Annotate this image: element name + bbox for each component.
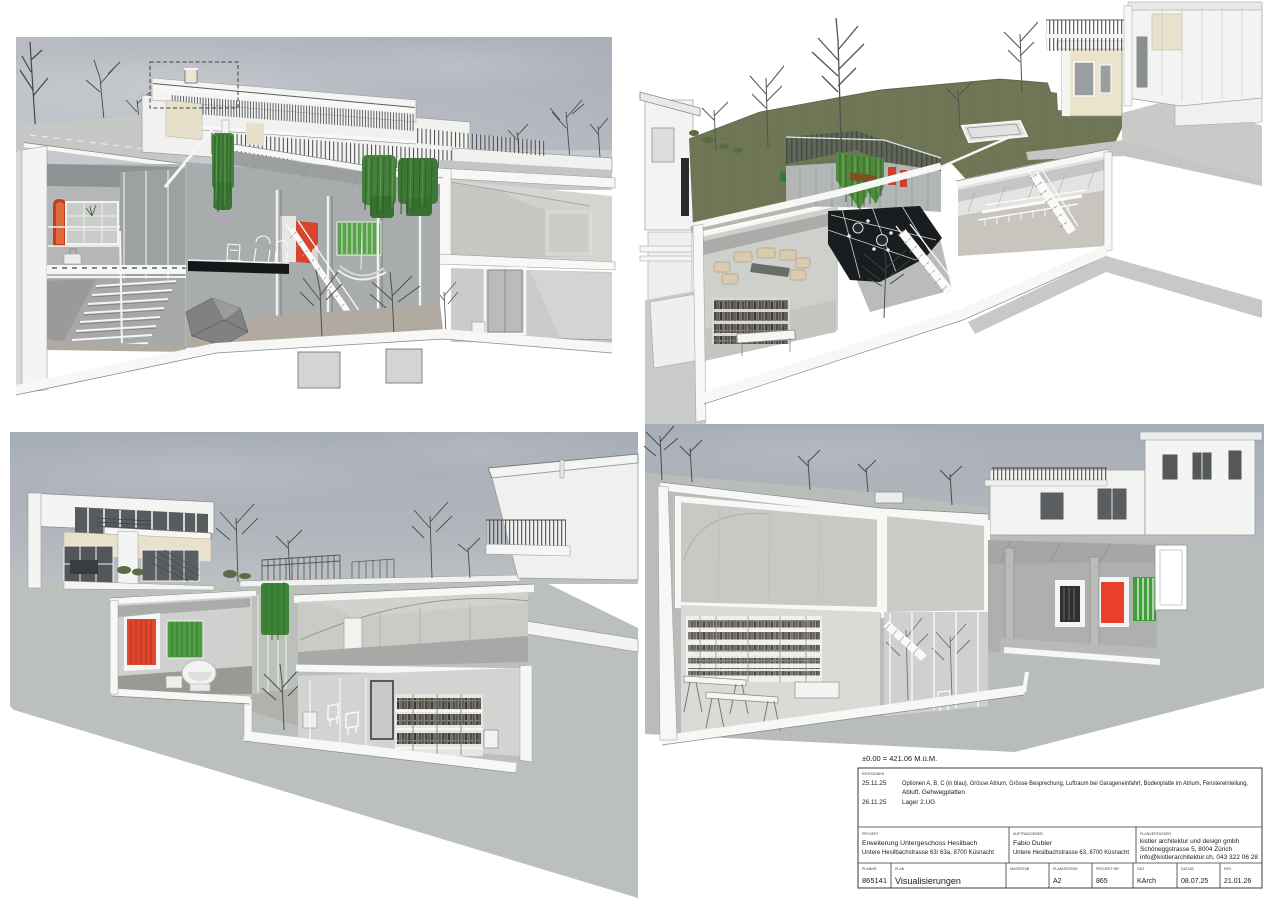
svg-text:Optionen A, B, C (in blau), Gr: Optionen A, B, C (in blau), Grösse Atriu… <box>902 780 1248 787</box>
svg-text:MASSSTAB: MASSSTAB <box>1010 867 1030 871</box>
svg-text:PLANGRÖSSE: PLANGRÖSSE <box>1053 867 1078 871</box>
svg-text:REVISIONEN: REVISIONEN <box>862 772 885 776</box>
svg-text:PROJEKT NR: PROJEKT NR <box>1096 867 1119 871</box>
svg-text:865141: 865141 <box>862 876 887 885</box>
svg-text:PROJEKT: PROJEKT <box>862 832 879 836</box>
svg-text:REV: REV <box>1224 867 1232 871</box>
svg-text:Visualisierungen: Visualisierungen <box>895 876 961 886</box>
svg-text:Schöneggstrasse 5, 8004 Zürich: Schöneggstrasse 5, 8004 Zürich <box>1140 846 1232 853</box>
svg-text:GEZ: GEZ <box>1137 867 1145 871</box>
svg-text:info@kistlerarchitektur.ch, 04: info@kistlerarchitektur.ch, 043 322 06 2… <box>1140 854 1258 861</box>
svg-text:26.11.25: 26.11.25 <box>862 799 887 806</box>
svg-text:Erweiterung Untergeschoss Hesi: Erweiterung Untergeschoss Hesilbach <box>862 840 977 847</box>
svg-text:25.11.25: 25.11.25 <box>862 780 887 787</box>
svg-text:865: 865 <box>1096 878 1108 885</box>
svg-text:A2: A2 <box>1053 878 1062 885</box>
svg-text:AUFTRAGGEBER: AUFTRAGGEBER <box>1013 832 1043 836</box>
svg-text:KArch: KArch <box>1137 878 1156 885</box>
svg-text:Fabio Dubler: Fabio Dubler <box>1013 840 1053 847</box>
svg-text:DATUM: DATUM <box>1181 867 1194 871</box>
svg-text:PLANNR: PLANNR <box>862 867 877 871</box>
svg-text:PLAN: PLAN <box>895 867 905 871</box>
svg-text:±0.00 = 421.06 M.ü.M.: ±0.00 = 421.06 M.ü.M. <box>862 754 937 763</box>
svg-text:21.01.26: 21.01.26 <box>1224 878 1251 885</box>
svg-text:Abluft. Gehwegplatten: Abluft. Gehwegplatten <box>902 789 965 796</box>
svg-text:PLANVERFASSER: PLANVERFASSER <box>1140 832 1171 836</box>
svg-text:Untere Hesilbachstrasse 63/ 63: Untere Hesilbachstrasse 63/ 63a, 8700 Kü… <box>862 849 994 856</box>
svg-text:kistler architektur und design: kistler architektur und design gmbh <box>1140 838 1240 845</box>
svg-text:Lager 2.UG: Lager 2.UG <box>902 799 935 806</box>
svg-text:08.07.25: 08.07.25 <box>1181 878 1208 885</box>
svg-text:Untere Hesilbachstrasse 63, 87: Untere Hesilbachstrasse 63, 8700 Küsnach… <box>1013 849 1129 856</box>
